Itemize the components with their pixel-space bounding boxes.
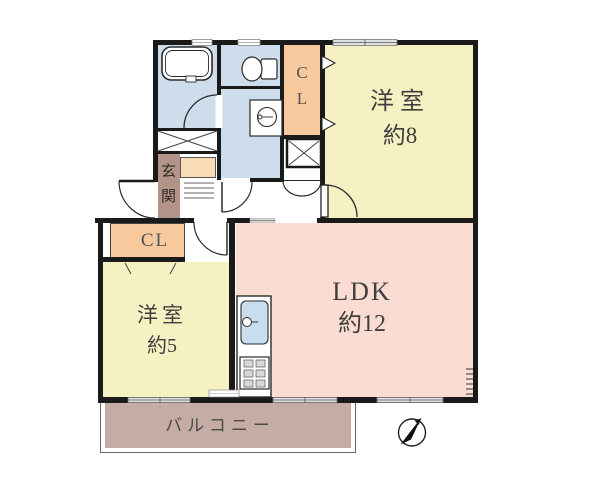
entrance-step-lines	[184, 183, 214, 198]
bedroom5-name: 洋室	[92, 303, 232, 328]
entrance-char-1: 玄	[161, 160, 176, 185]
ldk-threshold	[250, 219, 275, 223]
front-door	[119, 181, 155, 218]
label-bedroom-8: 洋室 約8	[330, 88, 470, 149]
room-bathroom	[158, 45, 217, 130]
label-balcony: バルコニー	[120, 416, 320, 436]
floorplan: 洋室 約8 LDK 約12 洋室 約5 C L CL 玄 関 バルコニー	[0, 0, 600, 480]
label-ldk: LDK 約12	[292, 276, 432, 339]
storage-x-mark	[158, 131, 217, 151]
label-closet-upper: C L	[290, 60, 314, 113]
pipe-space-icon	[287, 139, 321, 167]
compass-icon	[399, 419, 426, 447]
label-bedroom-5: 洋室 約5	[92, 303, 232, 358]
closet-upper-c: C	[296, 60, 307, 86]
bedroom8-name: 洋室	[330, 88, 470, 117]
label-closet-lower: CL	[130, 230, 180, 253]
shoe-cabinet	[180, 157, 216, 178]
closet-upper-l: L	[297, 86, 307, 112]
washroom-door-arc	[222, 182, 252, 212]
closet-double-doors	[283, 181, 321, 197]
bedroom8-size: 約8	[330, 122, 470, 150]
ldk-name: LDK	[292, 276, 432, 307]
entrance-char-2: 関	[161, 185, 176, 210]
room-washroom	[221, 89, 280, 178]
room-toilet	[221, 45, 280, 86]
bedroom5-size: 約5	[92, 334, 232, 358]
ldk-size: 約12	[292, 310, 432, 339]
label-entrance: 玄 関	[159, 160, 178, 210]
vestibule-door	[194, 222, 227, 255]
